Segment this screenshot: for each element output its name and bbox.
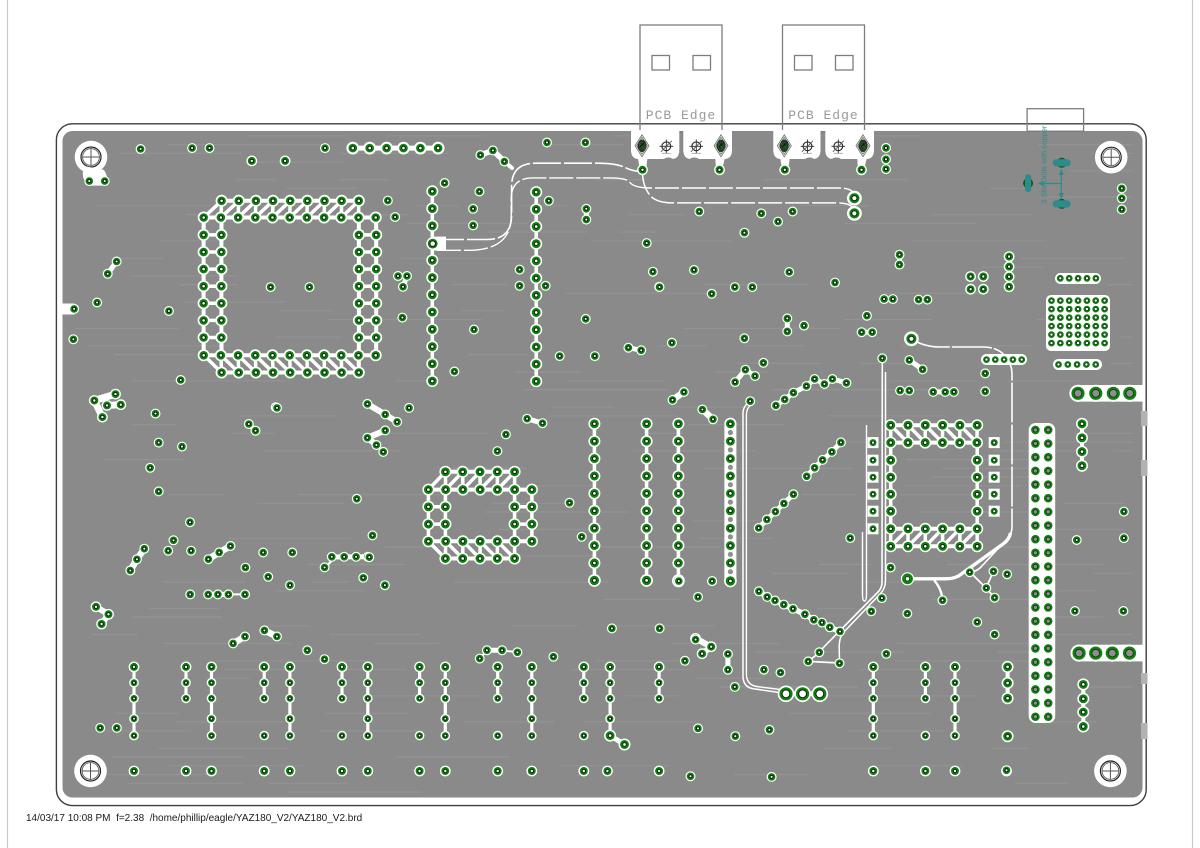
svg-text:PCB Edge: PCB Edge: [788, 108, 858, 123]
svg-text:3 Slot Drills with copper: 3 Slot Drills with copper: [1040, 125, 1049, 204]
svg-text:PCB Edge: PCB Edge: [646, 108, 716, 123]
